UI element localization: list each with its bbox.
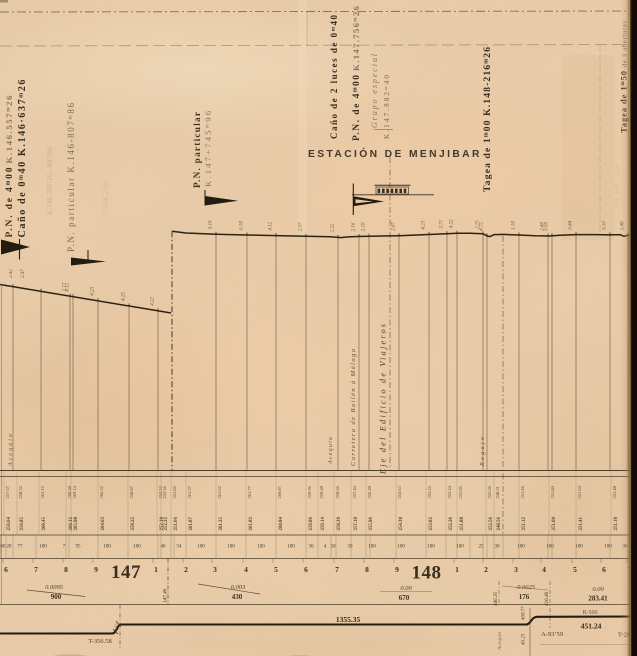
svg-text:5: 5 [274,565,278,574]
svg-text:P.N. de 4ᵐ00: P.N. de 4ᵐ00 [352,75,362,141]
svg-text:100: 100 [456,545,464,550]
svg-text:258.52: 258.52 [18,486,23,498]
svg-text:265.98: 265.98 [74,516,79,530]
svg-text:251.84: 251.84 [550,485,555,498]
svg-text:4.23: 4.23 [90,287,95,296]
svg-text:255.96: 255.96 [369,516,374,530]
svg-text:0.44: 0.44 [568,220,573,229]
svg-text:251.60: 251.60 [552,516,557,530]
svg-text:6: 6 [304,565,308,574]
svg-text:261.87: 261.87 [189,516,194,530]
svg-text:T-356.58: T-356.58 [88,638,111,645]
svg-text:4: 4 [244,565,248,574]
svg-text:P.N. particular: P.N. particular [192,112,202,188]
svg-text:2.67: 2.67 [391,221,396,230]
svg-text:100: 100 [287,545,295,550]
svg-text:260.84: 260.84 [279,516,284,530]
svg-text:Tagea de 1ᵐ00 K.148-216ᵐ26: Tagea de 1ᵐ00 K.148-216ᵐ26 [482,47,493,192]
svg-text:2.22: 2.22 [330,223,335,232]
svg-text:259.86: 259.86 [309,516,314,530]
svg-text:0.0025: 0.0025 [517,584,536,591]
svg-text:7: 7 [335,565,339,574]
svg-text:54: 54 [177,545,183,550]
svg-text:147: 147 [111,562,141,583]
svg-text:253.25: 253.25 [427,485,432,498]
svg-text:243.56: 243.56 [487,485,492,498]
svg-text:147.46: 147.46 [162,588,169,603]
svg-text:257.18: 257.18 [354,516,359,530]
svg-text:100: 100 [427,545,435,550]
svg-text:100: 100 [517,545,525,550]
svg-text:0.00: 0.00 [592,586,604,593]
svg-text:0.00: 0.00 [400,585,412,592]
svg-text:256.85: 256.85 [20,516,25,530]
svg-text:257.44: 257.44 [352,485,357,498]
svg-text:4.25: 4.25 [121,292,126,301]
svg-text:100: 100 [368,545,376,550]
svg-text:148: 148 [412,563,442,584]
svg-text:416.46: 416.46 [543,591,550,606]
svg-text:260.45: 260.45 [42,516,47,530]
svg-text:3.71: 3.71 [439,220,444,229]
svg-text:258.22: 258.22 [131,516,136,530]
svg-text:261.77: 261.77 [247,485,252,498]
svg-text:251.12: 251.12 [522,516,527,530]
svg-text:1.18: 1.18 [511,221,516,230]
svg-text:4.22: 4.22 [150,297,155,306]
svg-text:7: 7 [34,565,38,574]
svg-text:K.146.597:26 - 807:86: K.146.597:26 - 807:86 [45,146,54,215]
svg-text:256.20: 256.20 [367,485,372,498]
svg-text:9: 9 [94,565,98,574]
svg-text:100: 100 [546,545,554,550]
svg-text:95: 95 [76,545,82,550]
svg-text:4: 4 [542,565,546,574]
svg-text:253.02: 253.02 [429,516,434,530]
svg-text:251.46: 251.46 [520,485,525,498]
svg-text:P.N. de 4ᵐ00: P.N. de 4ᵐ00 [5,167,15,237]
svg-text:100: 100 [604,545,612,550]
svg-text:251.40: 251.40 [612,485,617,498]
svg-text:451.24: 451.24 [581,622,602,631]
svg-text:28: 28 [7,545,13,550]
svg-text:251.64: 251.64 [577,485,582,498]
svg-text:2: 2 [484,565,488,574]
svg-text:100: 100 [103,545,111,550]
svg-text:25: 25 [479,545,485,550]
svg-text:252.26: 252.26 [449,516,454,530]
svg-text:100: 100 [257,545,265,550]
svg-text:R-500: R-500 [583,610,598,616]
svg-text:3: 3 [514,565,518,574]
svg-text:670: 670 [399,594,410,602]
svg-text:251.66: 251.66 [174,516,179,530]
svg-text:100: 100 [227,545,235,550]
svg-text:252.56: 252.56 [162,485,167,498]
svg-text:260.87: 260.87 [277,485,282,498]
svg-text:258.66: 258.66 [335,485,340,498]
svg-text:261.62: 261.62 [217,486,222,498]
svg-text:4.12: 4.12 [65,282,70,291]
svg-text:251.85: 251.85 [172,485,177,498]
svg-text:36.15: 36.15 [114,623,119,634]
svg-text:283.41: 283.41 [588,595,608,603]
svg-text:252.32: 252.32 [164,516,169,530]
svg-text:258.87: 258.87 [129,485,134,498]
svg-text:248.31: 248.31 [495,486,500,498]
svg-text:5: 5 [573,565,577,574]
svg-text:4.23: 4.23 [421,220,426,229]
svg-text:2.18: 2.18 [361,222,366,231]
svg-text:Caño de 2 luces de 0ᵐ40: Caño de 2 luces de 0ᵐ40 [329,15,339,139]
svg-text:P.N. particular K.146-807ᵐ86: P.N. particular K.146-807ᵐ86 [66,102,76,252]
svg-text:100: 100 [133,545,141,550]
svg-text:254.63: 254.63 [397,485,402,498]
svg-text:2.42: 2.42 [9,269,14,278]
svg-text:60: 60 [1,545,7,550]
svg-text:261.37: 261.37 [187,485,192,498]
svg-text:261.82: 261.82 [249,516,254,530]
svg-text:446.35: 446.35 [492,591,499,606]
svg-text:259.96: 259.96 [307,485,312,498]
svg-text:264.63: 264.63 [101,516,106,530]
svg-text:1355.35: 1355.35 [336,615,361,624]
svg-text:0.0095: 0.0095 [45,584,64,591]
svg-text:50: 50 [331,545,337,550]
svg-text:266.52: 266.52 [99,486,104,498]
svg-text:251.18: 251.18 [614,516,619,530]
svg-text:6: 6 [4,565,8,574]
svg-text:36: 36 [309,545,315,550]
svg-text:252.56: 252.56 [489,516,494,530]
svg-text:4.12: 4.12 [268,221,273,230]
svg-text:8: 8 [64,565,68,574]
svg-text:408.77: 408.77 [522,606,527,620]
svg-text:46.23: 46.23 [522,633,527,645]
svg-text:2.47: 2.47 [21,269,26,278]
svg-text:2: 2 [184,565,188,574]
svg-text:430: 430 [232,593,243,601]
svg-text:176: 176 [519,593,530,601]
svg-text:0.10: 0.10 [602,221,607,230]
svg-text:251.88: 251.88 [460,516,465,530]
svg-text:257.67: 257.67 [5,485,10,498]
svg-text:252.44: 252.44 [447,485,452,498]
svg-text:6: 6 [602,565,606,574]
svg-text:900: 900 [51,593,62,601]
svg-text:A-93’59: A-93’59 [541,631,563,638]
svg-text:100: 100 [575,545,583,550]
svg-text:2.07: 2.07 [298,222,303,231]
svg-text:1: 1 [455,565,459,574]
svg-text:50: 50 [348,545,354,550]
svg-text:1: 1 [154,565,158,574]
svg-text:248.56: 248.56 [497,516,502,530]
svg-text:259.40: 259.40 [319,485,324,498]
svg-text:252.05: 252.05 [458,485,463,498]
svg-text:9: 9 [395,565,399,574]
svg-text:2.16: 2.16 [351,222,356,231]
svg-text:100: 100 [397,545,405,550]
svg-text:46: 46 [161,545,167,550]
svg-text:Caño de 0ᵐ40 K.146·637ᵐ26: Caño de 0ᵐ40 K.146·637ᵐ26 [17,80,28,238]
svg-text:0.59: 0.59 [544,222,549,231]
svg-text:100: 100 [39,545,47,550]
svg-text:100: 100 [197,545,205,550]
svg-text:265.12: 265.12 [40,486,45,498]
svg-text:0.003: 0.003 [231,584,246,591]
svg-text:256.64: 256.64 [7,516,12,530]
svg-text:261.25: 261.25 [219,516,224,530]
svg-text:26 K.148.7 1.26: 26 K.148.7 1.26 [613,164,621,210]
svg-text:30: 30 [495,545,501,550]
svg-text:4.72: 4.72 [479,222,484,231]
svg-text:K.146.557ᵐ26: K.146.557ᵐ26 [4,95,14,164]
svg-text:4.22: 4.22 [449,219,454,228]
svg-text:K.147.756ᵐ26: K.147.756ᵐ26 [351,5,361,71]
svg-text:259.14: 259.14 [321,516,326,530]
svg-text:0.18: 0.18 [239,221,244,230]
svg-text:0.16: 0.16 [208,220,213,229]
svg-text:269.14: 269.14 [72,485,77,498]
svg-text:Acequia: Acequia [497,632,503,651]
svg-text:3: 3 [213,565,217,574]
svg-text:258.39: 258.39 [337,516,342,530]
svg-text:254.38: 254.38 [399,516,404,530]
svg-text:77: 77 [18,545,24,550]
svg-text:251.41: 251.41 [579,516,584,530]
svg-text:7.56 K.2:40: 7.56 K.2:40 [102,181,110,215]
svg-text:ESTACIÓN DE MENJIBAR: ESTACIÓN DE MENJIBAR [308,147,482,160]
svg-text:8: 8 [365,565,369,574]
